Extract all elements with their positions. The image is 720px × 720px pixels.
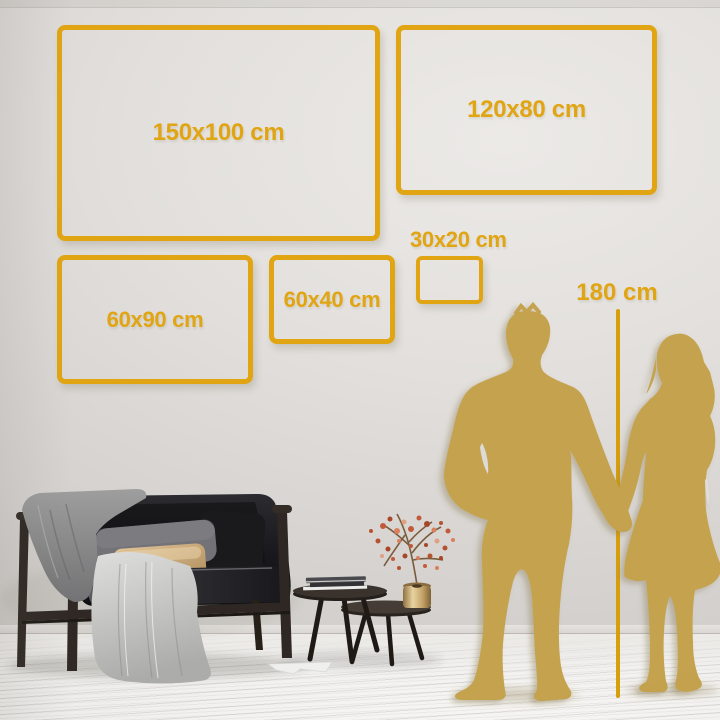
height-reference-line (616, 309, 620, 698)
frame-60x40: 60x40 cm (269, 255, 395, 344)
frame-60x90: 60x90 cm (57, 255, 253, 384)
wood-floor (0, 634, 720, 720)
ceiling-line (0, 7, 720, 8)
frame-label-30x20: 30x20 cm (410, 227, 507, 253)
baseboard (0, 625, 720, 634)
ceiling-strip (0, 0, 720, 7)
frame-label-150x100: 150x100 cm (153, 119, 285, 147)
frame-120x80: 120x80 cm (396, 25, 657, 195)
frame-150x100: 150x100 cm (57, 25, 380, 241)
frame-label-120x80: 120x80 cm (467, 96, 586, 124)
height-reference-label: 180 cm (574, 279, 660, 307)
frame-30x20: 30x20 cm (416, 256, 483, 304)
frame-label-60x40: 60x40 cm (284, 287, 381, 313)
size-guide-scene: 150x100 cm 120x80 cm 60x90 cm 60x40 cm 3… (0, 0, 720, 720)
frame-label-60x90: 60x90 cm (107, 307, 204, 333)
